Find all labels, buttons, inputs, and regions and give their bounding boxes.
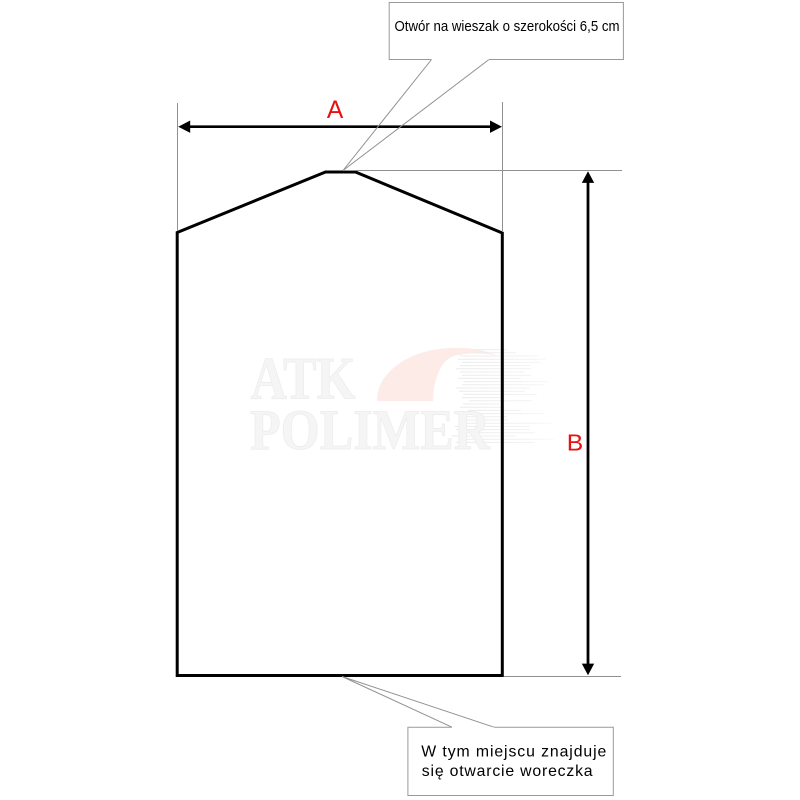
svg-text:W tym miejscu znajduje: W tym miejscu znajduje [421,744,606,761]
svg-text:A: A [327,96,344,124]
svg-text:B: B [567,429,584,455]
svg-text:POLIMER: POLIMER [250,399,491,462]
svg-text:Otwór na wieszak o szerokości: Otwór na wieszak o szerokości 6,5 cm [395,19,620,35]
svg-text:się otwarcie woreczka: się otwarcie woreczka [422,763,593,780]
